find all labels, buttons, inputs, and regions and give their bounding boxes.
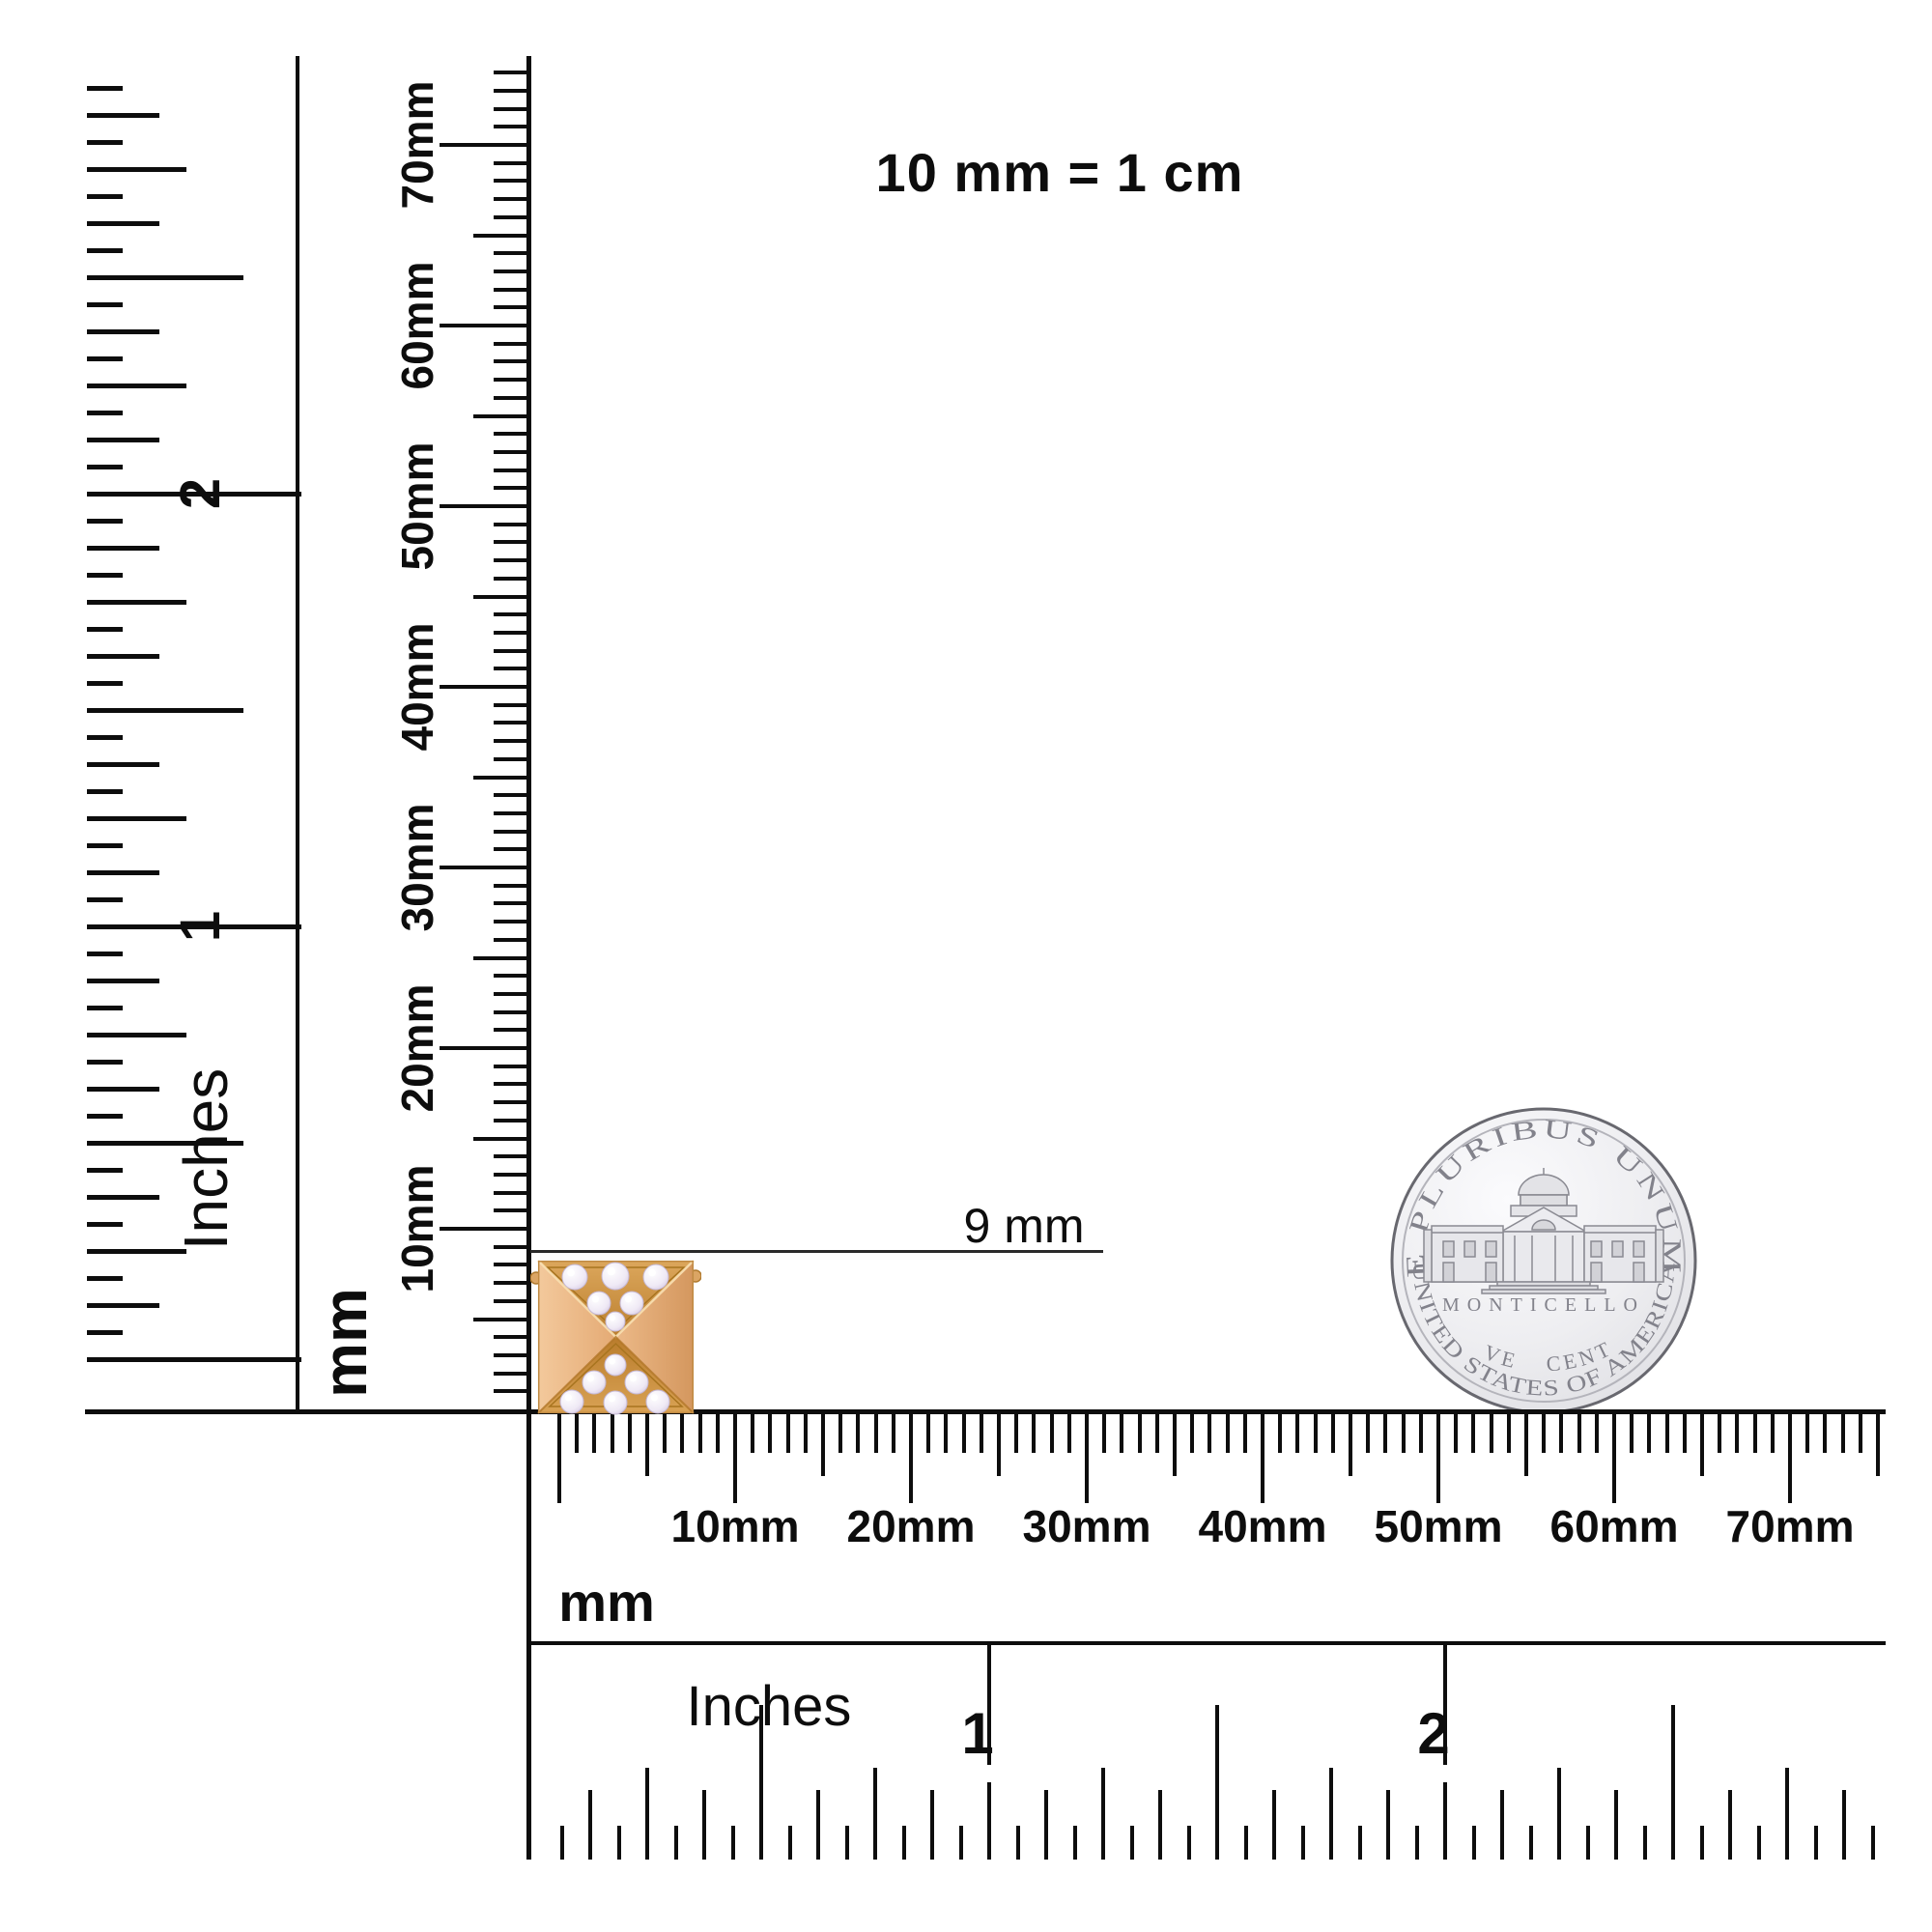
ruler-tick xyxy=(1643,1826,1647,1860)
ruler-tick xyxy=(87,275,243,280)
ruler-tick xyxy=(494,1335,526,1339)
product-measurement-image: E PLURIBUS UNUM UNITED STATES OF AMERICA xyxy=(0,0,1932,1932)
ruler-tick xyxy=(494,558,526,562)
ruler-tick xyxy=(804,1414,808,1453)
ruler-tick xyxy=(1016,1826,1020,1860)
ruler-tick xyxy=(494,469,526,472)
ruler-tick xyxy=(751,1414,754,1453)
ruler-number-label: 30mm xyxy=(1014,1497,1159,1555)
diamond-sparkle xyxy=(587,1375,594,1381)
ruler-number-label: 20mm xyxy=(838,1497,983,1555)
ruler-tick xyxy=(87,1222,123,1227)
pyramid-stud-earring xyxy=(530,1255,701,1419)
coin-monticello-label: MONTICELLO xyxy=(1442,1294,1645,1316)
ruler-tick xyxy=(1158,1790,1162,1860)
ruler-tick xyxy=(494,667,526,670)
ruler-tick xyxy=(1529,1826,1533,1860)
ruler-tick xyxy=(1102,1414,1106,1453)
ruler-tick xyxy=(494,793,526,797)
ruler-tick xyxy=(1366,1414,1370,1453)
left-mm-unit-label: mm xyxy=(308,1265,382,1420)
ruler-tick xyxy=(494,1245,526,1249)
ruler-tick xyxy=(892,1414,895,1453)
ruler-tick xyxy=(909,1414,913,1503)
ruler-tick xyxy=(733,1414,737,1503)
ruler-tick xyxy=(962,1414,966,1453)
ruler-tick xyxy=(87,113,159,118)
ruler-tick xyxy=(87,1276,123,1281)
ruler-number-label: 40mm xyxy=(388,614,446,759)
diamond-stone xyxy=(646,1390,669,1413)
ruler-tick xyxy=(1630,1414,1634,1453)
ruler-tick xyxy=(1557,1768,1561,1860)
ruler-tick xyxy=(440,143,526,147)
ruler-tick xyxy=(87,1249,186,1254)
ruler-tick xyxy=(494,251,526,255)
ruler-tick xyxy=(494,577,526,581)
ruler-tick xyxy=(1301,1826,1305,1860)
ruler-tick xyxy=(617,1826,621,1860)
ruler-tick xyxy=(1436,1414,1440,1503)
ruler-number-label: 10mm xyxy=(388,1156,446,1301)
ruler-tick xyxy=(1261,1414,1264,1503)
ruler-tick xyxy=(1215,1705,1219,1860)
ruler-tick xyxy=(1454,1414,1458,1453)
ruler-tick xyxy=(87,600,186,605)
ruler-tick xyxy=(494,631,526,635)
ruler-tick xyxy=(592,1414,596,1453)
ruler-whole-inch-tick xyxy=(1443,1645,1447,1765)
ruler-tick xyxy=(1067,1414,1071,1453)
ruler-tick xyxy=(440,866,526,869)
ruler-tick xyxy=(494,974,526,978)
ruler-tick xyxy=(1272,1790,1276,1860)
diamond-sparkle xyxy=(609,1395,615,1402)
diamond-stone xyxy=(604,1391,627,1414)
ruler-tick xyxy=(494,107,526,111)
ruler-tick xyxy=(87,924,301,929)
ruler-tick xyxy=(494,540,526,544)
ruler-tick xyxy=(1595,1414,1599,1453)
ruler-tick xyxy=(1155,1414,1159,1453)
ruler-tick xyxy=(1130,1826,1134,1860)
diamond-stone xyxy=(643,1264,668,1290)
ruler-number-label: 10mm xyxy=(663,1497,808,1555)
ruler-tick xyxy=(494,1299,526,1303)
ruler-whole-inch-tick xyxy=(987,1645,991,1765)
ruler-tick xyxy=(838,1414,842,1453)
ruler-tick xyxy=(87,1141,243,1146)
ruler-tick xyxy=(674,1826,678,1860)
ruler-tick xyxy=(1278,1414,1282,1453)
ruler-tick xyxy=(473,956,526,960)
ruler-tick xyxy=(1314,1414,1318,1453)
ruler-tick xyxy=(1735,1414,1739,1453)
ruler-tick xyxy=(494,612,526,616)
ruler-tick xyxy=(1700,1414,1704,1476)
ruler-tick xyxy=(494,378,526,382)
ruler-tick xyxy=(1173,1414,1177,1476)
nickel-coin: E PLURIBUS UNUM UNITED STATES OF AMERICA xyxy=(1389,1106,1698,1415)
ruler-number-label: 60mm xyxy=(388,253,446,398)
ruler-tick xyxy=(645,1768,649,1860)
ruler-tick xyxy=(87,465,123,469)
diamond-stone xyxy=(587,1292,611,1315)
ruler-tick xyxy=(87,789,123,794)
ruler-tick xyxy=(1295,1414,1299,1453)
diamond-stone xyxy=(620,1292,643,1315)
diamond-sparkle xyxy=(608,1267,615,1275)
ruler-tick xyxy=(494,1208,526,1212)
ruler-tick xyxy=(786,1414,790,1453)
ruler-tick xyxy=(494,1372,526,1376)
ruler-tick xyxy=(1472,1826,1476,1860)
ruler-tick xyxy=(87,1006,123,1010)
ruler-tick xyxy=(494,1281,526,1285)
ruler-tick xyxy=(494,703,526,707)
ruler-tick xyxy=(1243,1414,1247,1453)
ruler-tick xyxy=(87,1060,123,1065)
ruler-tick xyxy=(902,1826,906,1860)
ruler-tick xyxy=(1032,1414,1036,1453)
ruler-tick xyxy=(494,1028,526,1032)
ruler-tick xyxy=(494,125,526,128)
ruler-tick xyxy=(494,270,526,273)
ruler-tick xyxy=(1871,1826,1875,1860)
diamond-sparkle xyxy=(592,1295,599,1302)
ruler-tick xyxy=(87,681,123,686)
ruler-tick xyxy=(87,492,301,497)
ruler-tick xyxy=(930,1790,934,1860)
ruler-tick xyxy=(1014,1414,1018,1453)
ruler-tick xyxy=(87,1033,186,1037)
ruler-tick xyxy=(440,1227,526,1231)
diamond-stone xyxy=(625,1371,648,1394)
ruler-tick xyxy=(494,1010,526,1014)
ruler-tick xyxy=(1841,1414,1845,1453)
ruler-number-label: 70mm xyxy=(388,72,446,217)
ruler-tick xyxy=(716,1414,720,1453)
ruler-tick xyxy=(1190,1414,1194,1453)
ruler-tick xyxy=(980,1414,983,1453)
ruler-tick xyxy=(494,197,526,201)
ruler-tick xyxy=(87,86,123,91)
ruler-number-label: 50mm xyxy=(388,434,446,579)
ruler-tick xyxy=(494,721,526,724)
ruler-tick xyxy=(494,884,526,888)
measurement-leader-line xyxy=(530,1250,1103,1253)
ruler-tick xyxy=(1671,1705,1675,1860)
ruler-tick xyxy=(473,1137,526,1141)
ruler-tick xyxy=(1044,1790,1048,1860)
ruler-tick xyxy=(494,215,526,219)
ruler-tick xyxy=(494,739,526,743)
ruler-tick xyxy=(494,71,526,74)
ruler-tick xyxy=(873,1768,877,1860)
ruler-tick xyxy=(1490,1414,1493,1453)
ruler-tick xyxy=(87,952,123,956)
ruler-tick xyxy=(1842,1790,1846,1860)
ruler-tick xyxy=(759,1705,763,1860)
ruler-tick xyxy=(698,1414,702,1453)
ruler-tick xyxy=(1101,1768,1105,1860)
ruler-tick xyxy=(87,1114,123,1119)
ruler-tick xyxy=(494,89,526,93)
ruler-tick xyxy=(1402,1414,1406,1453)
ruler-tick xyxy=(87,762,159,767)
ruler-tick xyxy=(1507,1414,1511,1453)
ruler-tick xyxy=(87,384,186,388)
ruler-tick xyxy=(1329,1768,1333,1860)
ruler-tick xyxy=(87,979,159,983)
ruler-tick xyxy=(87,1087,159,1092)
ruler-tick xyxy=(440,1046,526,1050)
ruler-number-label: 40mm xyxy=(1190,1497,1335,1555)
bottom-inches-unit-label: Inches xyxy=(624,1674,914,1738)
ruler-tick xyxy=(87,1330,123,1335)
ruler-tick xyxy=(87,1195,159,1200)
ruler-tick xyxy=(1138,1414,1142,1453)
ruler-tick xyxy=(1500,1790,1504,1860)
scale-note: 10 mm = 1 cm xyxy=(818,140,1301,204)
ruler-tick xyxy=(1665,1414,1669,1453)
bottom-inches-ruler-baseline xyxy=(530,1641,1886,1645)
ruler-tick xyxy=(1524,1414,1528,1476)
ruler-tick xyxy=(87,1357,301,1362)
ruler-tick xyxy=(1415,1826,1419,1860)
diamond-sparkle xyxy=(565,1394,572,1401)
ruler-tick xyxy=(494,830,526,834)
ruler-tick xyxy=(1577,1414,1581,1453)
ruler-tick xyxy=(473,414,526,418)
ruler-tick xyxy=(494,757,526,761)
ruler-tick xyxy=(494,1191,526,1195)
ruler-tick xyxy=(702,1790,706,1860)
ruler-number-label: 1 xyxy=(905,1705,1050,1763)
ruler-tick xyxy=(87,654,159,659)
ruler-tick xyxy=(494,161,526,165)
ruler-tick xyxy=(494,305,526,309)
ruler-tick xyxy=(1700,1826,1704,1860)
ruler-tick xyxy=(821,1414,825,1476)
ruler-tick xyxy=(87,573,123,578)
ruler-tick xyxy=(768,1414,772,1453)
diamond-sparkle xyxy=(651,1394,658,1401)
ruler-tick xyxy=(1683,1414,1687,1453)
ruler-tick xyxy=(494,523,526,526)
ruler-tick xyxy=(856,1414,860,1453)
ruler-tick xyxy=(560,1826,564,1860)
ruler-tick xyxy=(874,1414,878,1453)
ruler-tick xyxy=(494,811,526,815)
diamond-sparkle xyxy=(609,1358,615,1365)
ruler-tick xyxy=(87,519,123,524)
ruler-tick xyxy=(1050,1414,1054,1453)
ruler-tick xyxy=(87,816,186,821)
ruler-tick xyxy=(944,1414,948,1453)
diamond-stone xyxy=(605,1354,626,1376)
ruler-tick xyxy=(87,627,123,632)
ruler-tick xyxy=(1085,1414,1089,1503)
ruler-tick xyxy=(87,194,123,199)
ruler-tick xyxy=(494,396,526,400)
ruler-tick xyxy=(87,708,243,713)
ruler-tick xyxy=(87,411,123,415)
ruler-tick xyxy=(611,1414,614,1453)
ruler-tick xyxy=(440,685,526,689)
ruler-tick xyxy=(1244,1826,1248,1860)
ruler-tick xyxy=(440,324,526,327)
ruler-tick xyxy=(494,432,526,436)
ruler-tick xyxy=(87,870,159,875)
left-mm-ruler-spine xyxy=(526,56,531,1860)
ruler-tick xyxy=(1207,1414,1211,1453)
ruler-tick xyxy=(440,504,526,508)
ruler-tick xyxy=(87,1168,123,1173)
ruler-tick xyxy=(1757,1826,1761,1860)
ruler-tick xyxy=(1471,1414,1475,1453)
ruler-tick xyxy=(494,992,526,996)
ruler-tick xyxy=(1771,1414,1775,1453)
diamond-sparkle xyxy=(630,1375,637,1381)
ruler-tick xyxy=(997,1414,1001,1476)
ruler-number-label: 70mm xyxy=(1718,1497,1862,1555)
diamond-sparkle xyxy=(567,1269,575,1277)
ruler-tick xyxy=(1349,1414,1352,1476)
ruler-tick xyxy=(494,288,526,292)
ruler-tick xyxy=(494,486,526,490)
ruler-tick xyxy=(87,329,159,334)
ruler-tick xyxy=(1788,1414,1792,1503)
ruler-tick xyxy=(473,234,526,238)
ruler-tick xyxy=(663,1414,667,1453)
ruler-tick xyxy=(494,847,526,851)
bottom-mm-unit-label: mm xyxy=(510,1569,703,1634)
ruler-tick xyxy=(87,843,123,848)
ruler-tick xyxy=(87,302,123,307)
ruler-tick xyxy=(494,342,526,346)
ruler-tick xyxy=(575,1414,579,1453)
ruler-tick xyxy=(1728,1790,1732,1860)
diamond-sparkle xyxy=(610,1316,615,1321)
ruler-tick xyxy=(87,546,159,551)
ruler-tick xyxy=(494,938,526,942)
ruler-tick xyxy=(816,1790,820,1860)
ruler-tick xyxy=(731,1826,735,1860)
ruler-tick xyxy=(1226,1414,1230,1453)
ruler-tick xyxy=(494,1263,526,1266)
ruler-tick xyxy=(845,1826,849,1860)
ruler-tick xyxy=(87,248,123,253)
ruler-tick xyxy=(926,1414,930,1453)
ruler-tick xyxy=(494,1065,526,1068)
ruler-tick xyxy=(1187,1826,1191,1860)
ruler-tick xyxy=(1419,1414,1423,1453)
diamond-sparkle xyxy=(625,1295,632,1302)
ruler-tick xyxy=(87,438,159,442)
ruler-tick xyxy=(1542,1414,1546,1453)
ruler-tick xyxy=(1559,1414,1563,1453)
ruler-tick xyxy=(557,1414,561,1503)
ruler-tick xyxy=(1614,1790,1618,1860)
ruler-tick xyxy=(494,1173,526,1177)
ruler-tick xyxy=(1443,1782,1447,1860)
ruler-tick xyxy=(1383,1414,1387,1453)
diamond-sparkle xyxy=(648,1269,656,1277)
ruler-tick xyxy=(494,1119,526,1122)
ruler-tick xyxy=(1859,1414,1862,1453)
ruler-tick xyxy=(1814,1826,1818,1860)
ruler-tick xyxy=(1647,1414,1651,1453)
measurement-label: 9 mm xyxy=(908,1199,1140,1253)
diamond-stone xyxy=(606,1312,625,1331)
ruler-tick xyxy=(588,1790,592,1860)
ruler-tick xyxy=(494,359,526,363)
ruler-tick xyxy=(473,776,526,780)
ruler-tick xyxy=(494,1154,526,1158)
left-inches-unit-label: Inches xyxy=(167,1014,244,1304)
ruler-tick xyxy=(494,901,526,905)
ruler-tick xyxy=(1753,1414,1757,1453)
ruler-number-label: 50mm xyxy=(1366,1497,1511,1555)
ruler-tick xyxy=(494,1100,526,1104)
ruler-tick xyxy=(473,1318,526,1321)
ruler-tick xyxy=(1718,1414,1721,1453)
ruler-tick xyxy=(788,1826,792,1860)
ruler-tick xyxy=(645,1414,649,1476)
ruler-tick xyxy=(494,920,526,923)
ruler-tick xyxy=(87,356,123,361)
ruler-tick xyxy=(1386,1790,1390,1860)
ruler-number-label: 20mm xyxy=(388,976,446,1121)
ruler-tick xyxy=(1358,1826,1362,1860)
ruler-number-label: 30mm xyxy=(388,795,446,940)
ruler-tick xyxy=(87,1303,159,1308)
ruler-tick xyxy=(959,1826,963,1860)
ruler-tick xyxy=(987,1782,991,1860)
ruler-tick xyxy=(473,595,526,599)
ruler-tick xyxy=(494,450,526,454)
ruler-tick xyxy=(87,140,123,145)
ruler-tick xyxy=(87,735,123,740)
ruler-number-label: 2 xyxy=(1361,1705,1506,1763)
ruler-tick xyxy=(494,649,526,653)
left-inches-ruler-spine xyxy=(296,56,299,1413)
ruler-tick xyxy=(494,1082,526,1086)
diamond-stone xyxy=(562,1264,587,1290)
ruler-tick xyxy=(87,897,123,902)
ruler-tick xyxy=(1073,1826,1077,1860)
ruler-tick xyxy=(1876,1414,1880,1476)
ruler-tick xyxy=(1331,1414,1335,1453)
ruler-tick xyxy=(494,179,526,183)
ruler-tick xyxy=(1785,1768,1789,1860)
ruler-tick xyxy=(1120,1414,1123,1453)
ruler-tick xyxy=(1586,1826,1590,1860)
diamond-stone xyxy=(602,1263,629,1290)
ruler-tick xyxy=(628,1414,632,1453)
diamond-stone xyxy=(582,1371,606,1394)
ruler-tick xyxy=(494,1389,526,1393)
ruler-number-label: 60mm xyxy=(1542,1497,1687,1555)
ruler-tick xyxy=(494,1353,526,1357)
ruler-tick xyxy=(1612,1414,1616,1503)
ruler-tick xyxy=(1805,1414,1809,1453)
ruler-tick xyxy=(87,167,186,172)
ruler-tick xyxy=(87,221,159,226)
diamond-stone xyxy=(560,1390,583,1413)
ruler-tick xyxy=(1823,1414,1827,1453)
